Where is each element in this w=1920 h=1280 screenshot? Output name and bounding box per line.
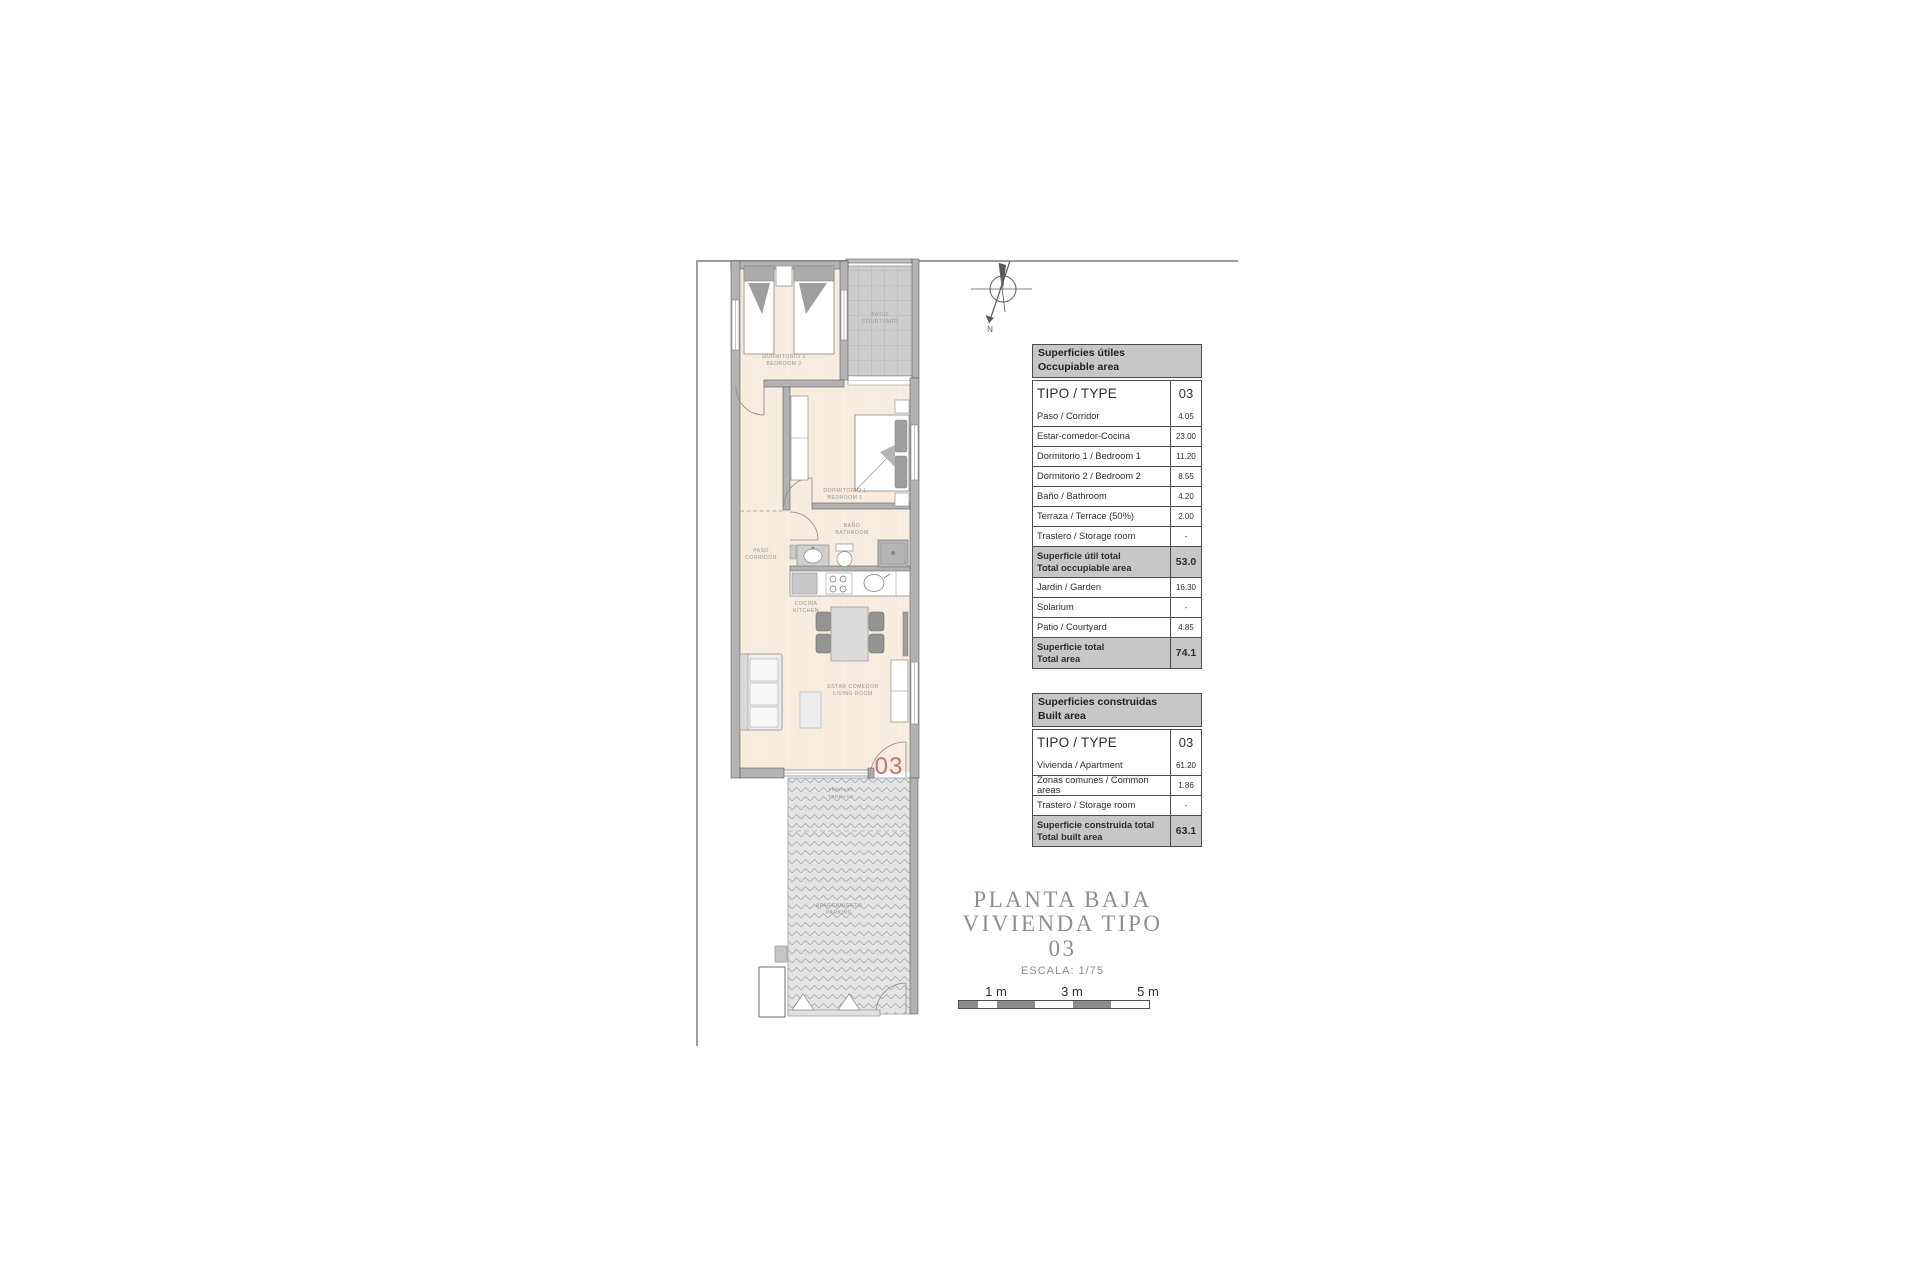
dining-table <box>816 607 884 661</box>
table-header-built: Superficies construidas Built area <box>1032 693 1202 727</box>
svg-text:CORRIDOR: CORRIDOR <box>745 555 777 561</box>
patio-courtyard <box>846 266 914 385</box>
table-row: Jardin / Garden16.30 <box>1033 577 1201 597</box>
unit-number: 03 <box>875 753 904 780</box>
svg-text:PARKING: PARKING <box>826 910 852 916</box>
table-total-row: Superficie útil totalTotal occupiable ar… <box>1033 546 1201 577</box>
built-area-table: Superficies construidas Built area TIPO … <box>1032 693 1202 847</box>
table-row: Trastero / Storage room- <box>1033 795 1201 815</box>
kitchen-counter <box>790 571 910 596</box>
room-label-corridor: PASO <box>753 548 769 554</box>
table-row: Zonas comunes / Common areas1.86 <box>1033 775 1201 795</box>
room-label-patio: PATIO <box>871 312 888 318</box>
table-total-row: Superficie construida totalTotal built a… <box>1033 815 1201 846</box>
room-label-living: ESTAR COMEDOR <box>827 684 878 690</box>
svg-text:LIVING ROOM: LIVING ROOM <box>833 691 873 697</box>
room-label-bedroom1: DORMITORIO 1 <box>823 488 866 494</box>
table-row: Solarium- <box>1033 597 1201 617</box>
title-block: PLANTA BAJA VIVIENDA TIPO 03 ESCALA: 1/7… <box>960 888 1165 977</box>
plan-title-line2: VIVIENDA TIPO 03 <box>960 912 1165 961</box>
svg-text:TERRACE: TERRACE <box>828 794 854 800</box>
table-row: Paso / Corridor4.05 <box>1033 407 1201 426</box>
room-label-parking: APARCAMIENTO <box>816 903 862 909</box>
table-total-row: Superficie totalTotal area74.1 <box>1033 637 1201 668</box>
type-row: TIPO / TYPE 03 <box>1033 730 1201 756</box>
north-arrow-icon: N <box>971 261 1032 334</box>
table-row: Vivienda / Apartment61.20 <box>1033 756 1201 775</box>
table-row: Trastero / Storage room- <box>1033 526 1201 546</box>
terrace-garden-paving <box>788 778 912 1014</box>
type-row: TIPO / TYPE 03 <box>1033 381 1201 407</box>
coffee-table <box>800 692 821 728</box>
table-row: Dormitorio 1 / Bedroom 111.20 <box>1033 446 1201 466</box>
scale-label-3m: 3 m <box>1061 984 1083 999</box>
room-label-bathroom: BAÑO <box>844 522 861 529</box>
svg-text:KITCHEN: KITCHEN <box>793 608 819 614</box>
plan-sheet: { "colors": { "accent_red": "#c4756c", "… <box>0 0 1920 1280</box>
plan-scale-note: ESCALA: 1/75 <box>960 965 1165 977</box>
north-label: N <box>987 325 993 334</box>
scale-label-5m: 5 m <box>1137 984 1159 999</box>
room-label-bedroom2: DORMITORIO 2 <box>762 354 805 360</box>
sofa <box>740 654 782 730</box>
scale-bar: 1 m 3 m 5 m <box>958 984 1154 1012</box>
svg-text:COURTYARD: COURTYARD <box>862 319 898 325</box>
room-label-kitchen: COCINA <box>795 601 818 607</box>
table-row: Dormitorio 2 / Bedroom 28.55 <box>1033 466 1201 486</box>
sheet-frame-left-line <box>696 260 698 1046</box>
svg-text:BEDROOM 1: BEDROOM 1 <box>827 495 862 501</box>
svg-text:BEDROOM 2: BEDROOM 2 <box>766 361 801 367</box>
table-row: Terraza / Terrace (50%)2.00 <box>1033 506 1201 526</box>
table-header-occupiable: Superficies útiles Occupiable area <box>1032 344 1202 378</box>
svg-text:BATHROOM: BATHROOM <box>835 530 868 536</box>
table-row: Patio / Courtyard4.85 <box>1033 617 1201 637</box>
table-row: Baño / Bathroom4.20 <box>1033 486 1201 506</box>
scale-bar-graphic <box>958 1000 1150 1009</box>
room-label-terrace: TERRAZA <box>828 787 854 793</box>
occupiable-area-table: Superficies útiles Occupiable area TIPO … <box>1032 344 1202 669</box>
scale-label-1m: 1 m <box>985 984 1007 999</box>
plan-title-line1: PLANTA BAJA <box>960 888 1165 912</box>
table-row: Estar-comedor-Cocina23.00 <box>1033 426 1201 446</box>
